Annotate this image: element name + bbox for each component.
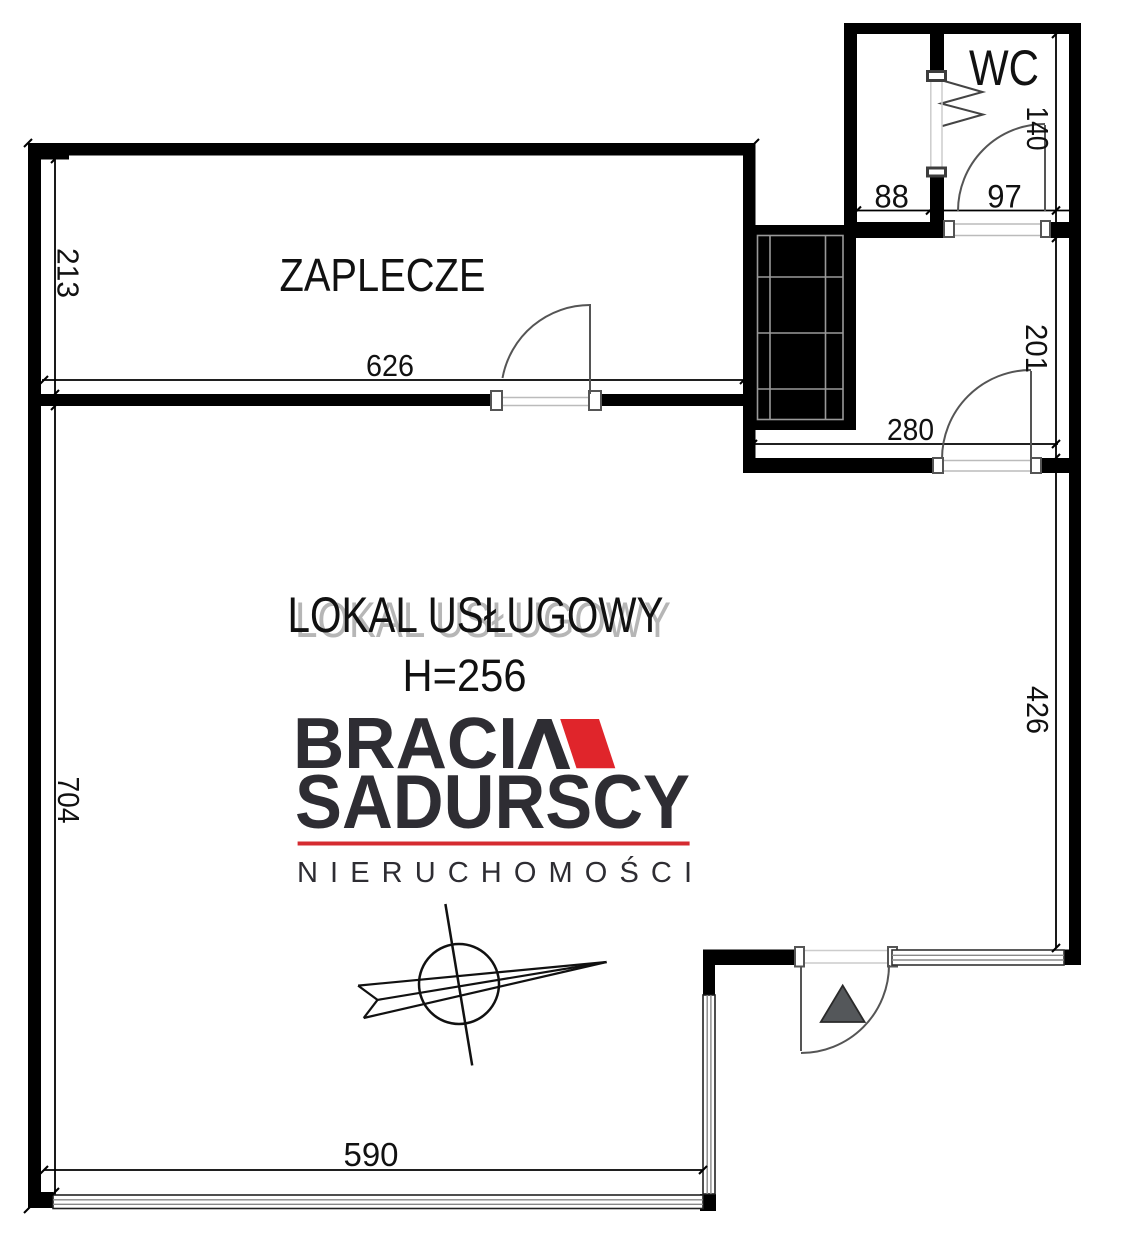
- svg-text:SADURSCY: SADURSCY: [295, 760, 690, 845]
- svg-text:LOKAL USŁUGOWY: LOKAL USŁUGOWY: [288, 587, 664, 643]
- svg-text:97: 97: [987, 179, 1022, 215]
- svg-text:WC: WC: [969, 40, 1039, 96]
- svg-text:426: 426: [1020, 686, 1055, 734]
- svg-text:H=256: H=256: [403, 650, 527, 701]
- svg-text:280: 280: [887, 412, 934, 447]
- svg-text:213: 213: [51, 248, 86, 298]
- svg-text:626: 626: [366, 348, 414, 383]
- svg-text:NIERUCHOMOŚCI: NIERUCHOMOŚCI: [297, 855, 692, 889]
- svg-text:704: 704: [51, 777, 86, 824]
- svg-text:88: 88: [874, 179, 909, 215]
- svg-text:140: 140: [1020, 107, 1055, 151]
- svg-text:201: 201: [1019, 324, 1054, 373]
- svg-text:590: 590: [344, 1136, 399, 1173]
- svg-text:ZAPLECZE: ZAPLECZE: [280, 249, 486, 301]
